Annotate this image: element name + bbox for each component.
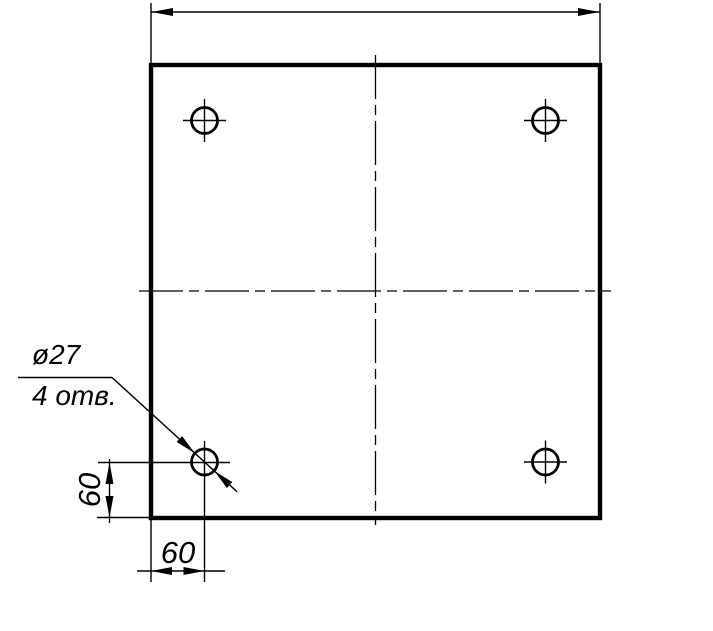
arrowhead-left: [152, 8, 174, 16]
arrowhead-right: [578, 8, 600, 16]
hole-count-label: 4 отв.: [32, 380, 117, 411]
drawing-canvas: 60 60 ø27 4 отв.: [0, 0, 713, 631]
dimension-bottom-label: 60: [161, 535, 195, 570]
dimension-left-label: 60: [72, 473, 107, 507]
hole-top-right: [524, 99, 567, 142]
dimension-bottom-60: 60: [137, 520, 225, 582]
dimension-top: [151, 3, 600, 64]
hole-top-left: [183, 99, 226, 142]
hole-bottom-right: [524, 441, 567, 484]
dimension-left-60: 60: [72, 459, 151, 523]
engineering-drawing: 60 60 ø27 4 отв.: [0, 0, 713, 631]
diameter-label: ø27: [32, 339, 82, 370]
